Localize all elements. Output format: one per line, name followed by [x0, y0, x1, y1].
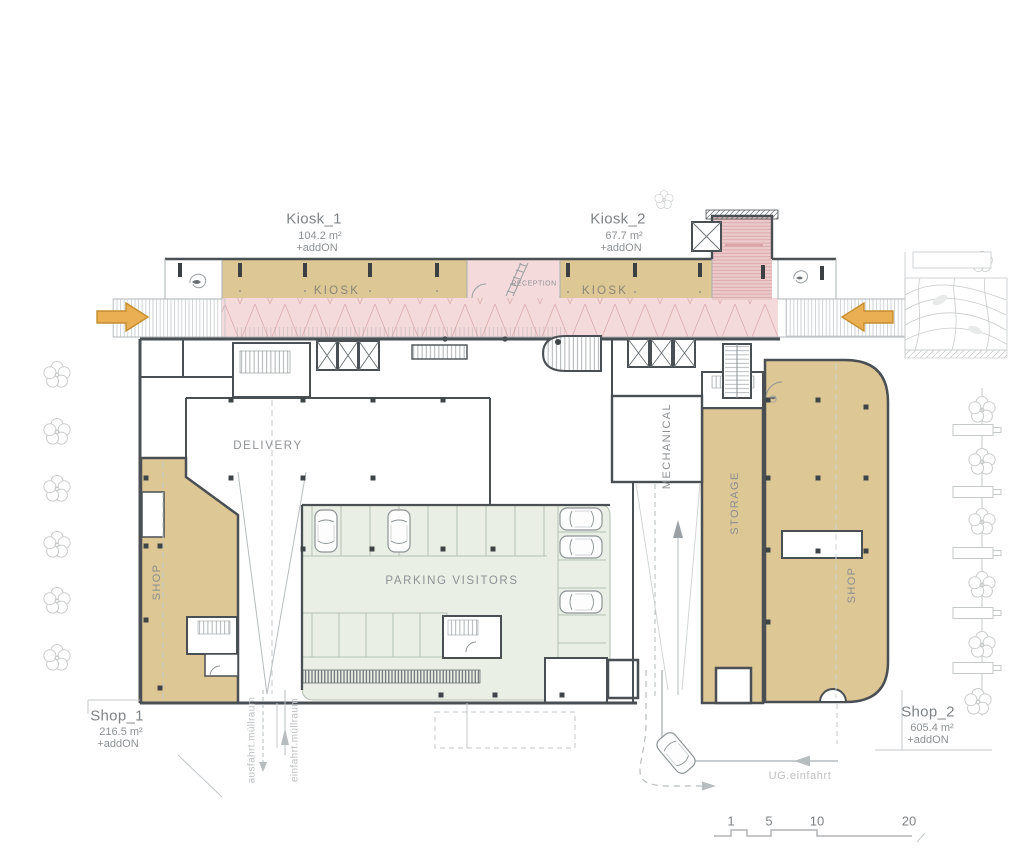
entry-block-left — [165, 259, 222, 299]
room-storage: STORAGE — [729, 471, 741, 534]
elevator-bank-west — [317, 341, 379, 370]
parking-corridor — [545, 658, 607, 703]
room-shop-right: SHOP — [846, 567, 858, 604]
scale-tick-10: 10 — [810, 814, 824, 829]
room-kiosk-left: KIOSK — [314, 285, 360, 297]
shop2-title: Shop_2 — [901, 704, 955, 721]
shop-left-niche — [142, 492, 164, 537]
shop2-area: 605.4 m² — [910, 722, 953, 734]
scale-tick-5: 5 — [765, 814, 772, 829]
floor-plan-drawing — [0, 0, 1024, 863]
turning-car — [654, 730, 698, 776]
kiosk1-title: Kiosk_1 — [286, 211, 341, 228]
shop1-addon: +addON — [97, 738, 138, 750]
room-mechanical: MECHANICAL — [661, 403, 673, 489]
kiosk1-addon: +addON — [296, 242, 337, 254]
kiosk2-area: 67.7 m² — [605, 230, 642, 242]
tower-elevator — [692, 222, 721, 251]
shop1-title: Shop_1 — [90, 708, 144, 725]
core-stair-east — [723, 344, 751, 398]
label-einfahrt-muellraum: einfahrt.müllraum — [290, 698, 301, 782]
label-ug-einfahrt: UG.einfahrt — [769, 770, 832, 782]
tower-text-mark — [725, 244, 763, 247]
shop1-area: 216.5 m² — [99, 726, 142, 738]
room-delivery: DELIVERY — [233, 440, 302, 452]
parking-stair — [443, 616, 501, 658]
storage-bottom-room — [716, 668, 751, 703]
core-stair-hatch — [240, 351, 290, 373]
scale-tick-20: 20 — [902, 814, 916, 829]
main-floor — [141, 360, 888, 703]
upper-mall-strip — [97, 210, 905, 342]
label-ausfahrt-muellraum: ausfahrt.müllraum — [247, 697, 258, 784]
kiosk2-title: Kiosk_2 — [590, 211, 645, 228]
shop2-addon: +addON — [907, 734, 948, 746]
ramp — [636, 484, 700, 698]
bike-rack-left — [303, 670, 480, 683]
site-lines — [88, 690, 992, 797]
scale-tick-1: 1 — [727, 814, 734, 829]
escalator-round — [543, 336, 601, 371]
kiosk1-area: 104.2 m² — [298, 230, 341, 242]
escalator-straight — [412, 345, 467, 359]
room-reception: RECEPTION — [511, 281, 556, 288]
floor-plan-page: Kiosk_1 104.2 m² +addON Kiosk_2 67.7 m² … — [0, 0, 1024, 863]
elevator-bank-east — [628, 339, 695, 367]
planting-patch — [905, 252, 1007, 358]
scale-bar — [714, 830, 925, 842]
arcade-edge-ticks — [235, 327, 565, 337]
room-kiosk-right: KIOSK — [582, 285, 628, 297]
room-shop-left: SHOP — [151, 564, 163, 601]
storage-area — [702, 408, 763, 703]
tower-roof-hatch — [706, 210, 778, 219]
kiosk2-addon: +addON — [600, 242, 641, 254]
room-parking: PARKING VISITORS — [385, 575, 518, 587]
shop-right-niche — [782, 531, 862, 558]
